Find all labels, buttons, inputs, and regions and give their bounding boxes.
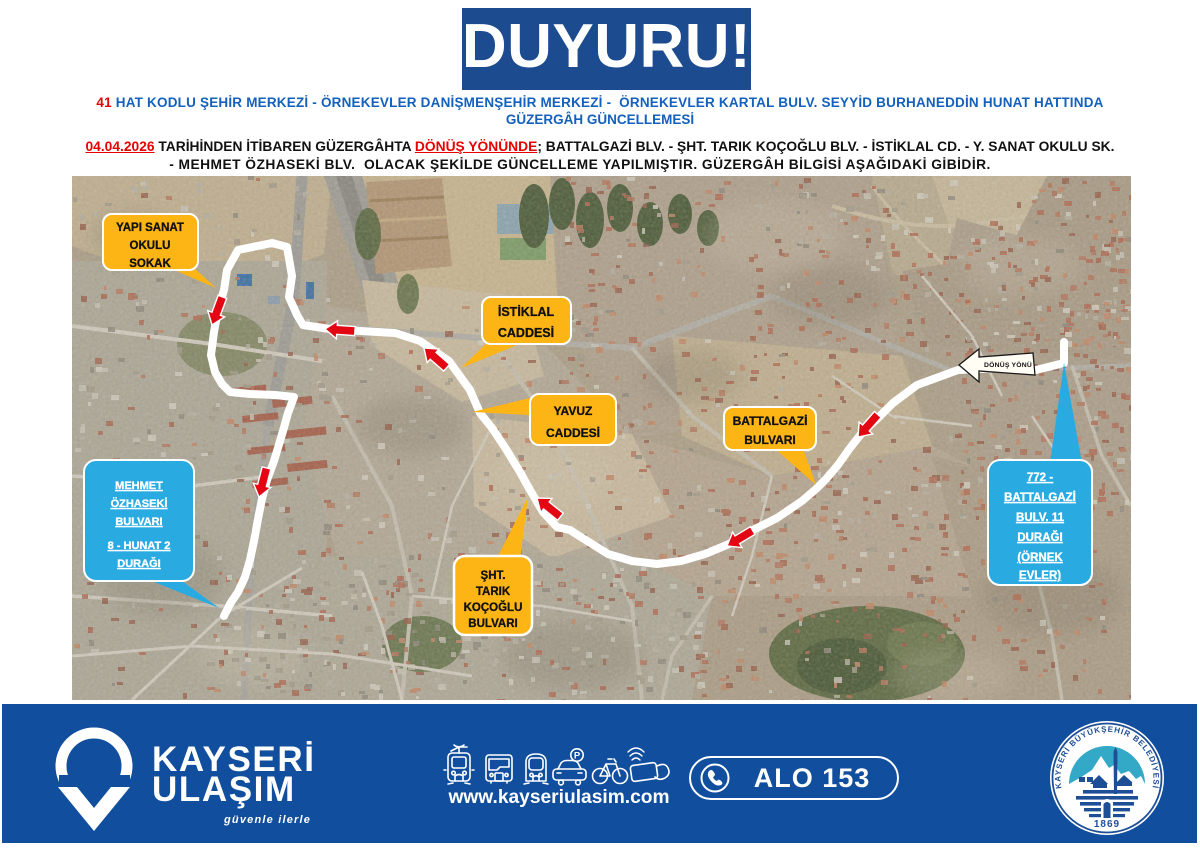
svg-text:YAVUZ: YAVUZ [554,404,593,418]
svg-text:DÖNÜŞ YÖNÜ: DÖNÜŞ YÖNÜ [984,360,1032,369]
svg-text:1869: 1869 [1094,819,1120,830]
svg-text:BATTALGAZİ: BATTALGAZİ [733,413,808,428]
svg-text:DURAĞI: DURAĞI [1017,531,1062,544]
svg-text:P: P [574,751,581,762]
svg-text:MEHMET: MEHMET [115,480,163,492]
svg-text:ŞHT.: ŞHT. [481,570,506,582]
svg-text:İSTİKLAL: İSTİKLAL [498,304,555,319]
svg-text:(ÖRNEK: (ÖRNEK [1017,551,1063,564]
svg-text:EVLER): EVLER) [1019,570,1061,582]
svg-text:BULVARI: BULVARI [468,618,517,630]
svg-text:OKULU: OKULU [130,240,171,252]
svg-text:SOKAK: SOKAK [129,258,171,270]
svg-text:DURAĞI: DURAĞI [117,557,160,570]
svg-text:CADDESİ: CADDESİ [546,425,600,440]
svg-text:BATTALGAZİ: BATTALGAZİ [1004,491,1076,504]
svg-text:YAPI SANAT: YAPI SANAT [116,222,184,234]
svg-text:ÖZHASEKİ: ÖZHASEKİ [111,497,168,510]
svg-text:www.kayseriulasim.com: www.kayseriulasim.com [447,787,669,808]
svg-text:BULV. 11: BULV. 11 [1016,512,1065,524]
svg-text:ALO 153: ALO 153 [754,763,871,793]
svg-text:CADDESİ: CADDESİ [498,325,554,340]
svg-text:güvenle ilerle: güvenle ilerle [223,814,311,826]
svg-text:KOÇOĞLU: KOÇOĞLU [464,601,523,614]
svg-text:ULAŞIM: ULAŞIM [152,770,296,809]
svg-text:BULVARI: BULVARI [115,516,162,528]
svg-text:TARIK: TARIK [476,586,511,598]
svg-text:772 -: 772 - [1027,472,1053,484]
svg-text:BULVARI: BULVARI [744,433,796,447]
svg-text:8 - HUNAT 2: 8 - HUNAT 2 [108,540,171,552]
